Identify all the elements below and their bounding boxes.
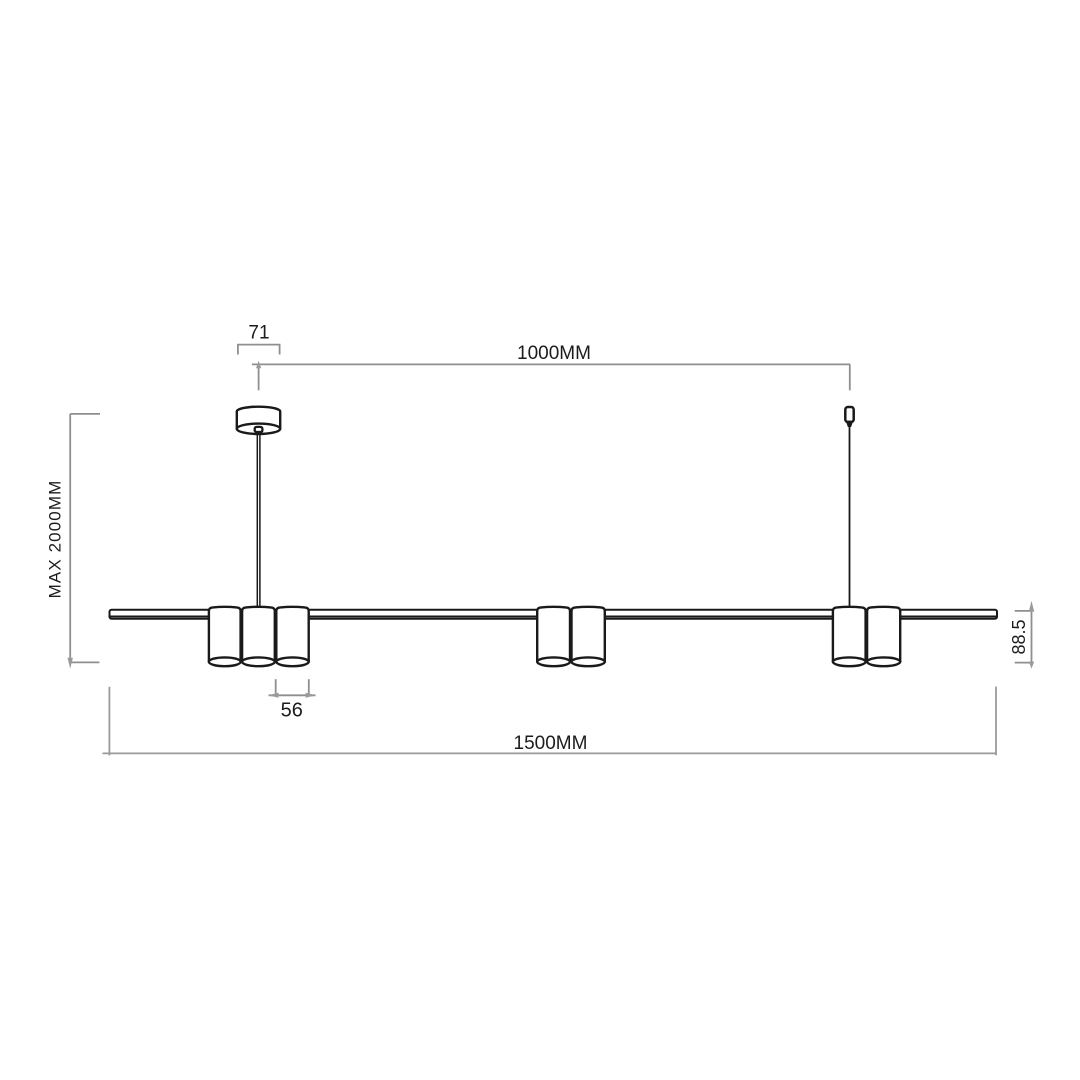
svg-text:1000MM: 1000MM [517, 343, 591, 364]
svg-text:MAX 2000MM: MAX 2000MM [46, 480, 65, 599]
svg-text:71: 71 [248, 323, 269, 344]
svg-text:1500MM: 1500MM [514, 733, 588, 754]
svg-text:88.5: 88.5 [1009, 619, 1029, 654]
svg-text:56: 56 [281, 700, 303, 722]
